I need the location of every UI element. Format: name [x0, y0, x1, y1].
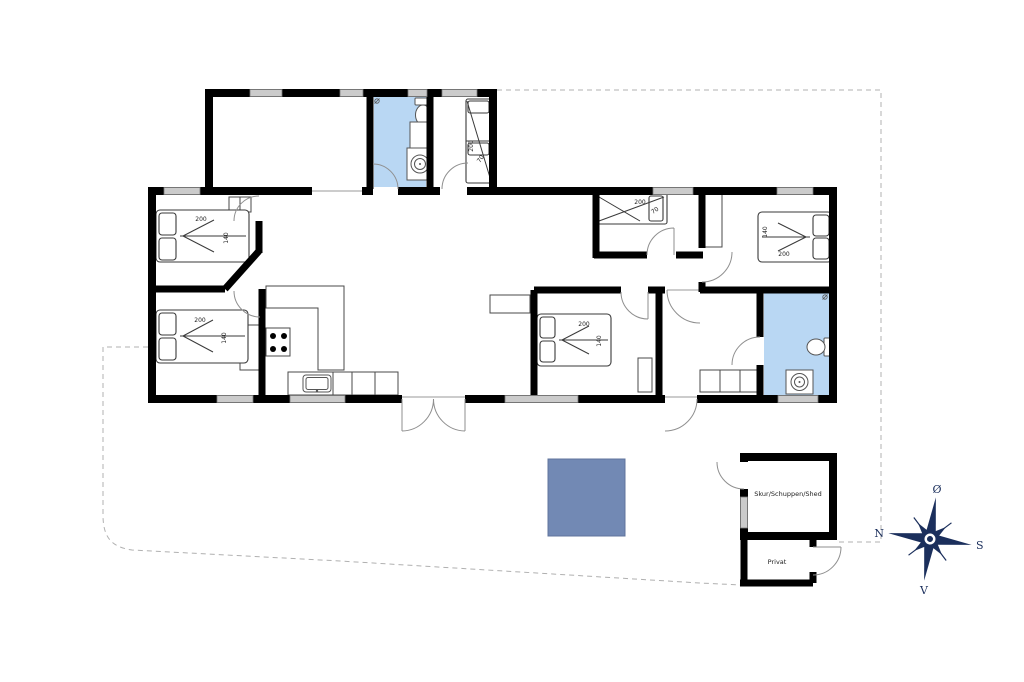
stove — [266, 328, 290, 356]
compass-south-label: S — [976, 539, 984, 552]
shed-label: Skur/Schuppen/Shed — [754, 490, 822, 498]
window — [250, 90, 282, 97]
window — [408, 90, 427, 97]
bedroom-bottom-left: 200 140 — [156, 310, 262, 370]
door-arc — [702, 252, 732, 282]
window — [340, 90, 363, 97]
window — [442, 90, 477, 97]
door-arc — [667, 290, 700, 323]
door-arc — [732, 337, 760, 365]
shed-walls — [740, 453, 837, 583]
french-door-left — [402, 399, 434, 431]
compass-north-label: N — [874, 527, 884, 540]
bunk-bed: 200 70 — [597, 193, 667, 224]
compass-east-label: Ø — [932, 483, 941, 496]
floorplan-canvas: 200 140 200 140 200 140 — [0, 0, 1024, 682]
double-bed: 140 200 — [758, 212, 832, 262]
toilet-icon — [807, 338, 832, 356]
window — [778, 396, 818, 403]
bedroom-top-left: 200 140 — [156, 197, 251, 262]
terrace — [548, 459, 625, 536]
bed-width-label: 140 — [596, 335, 603, 347]
privat-door-arc — [813, 547, 841, 575]
bunkroom-wing: 200 70 — [466, 99, 492, 183]
window — [741, 497, 748, 528]
door-arc — [647, 228, 674, 255]
window — [777, 188, 813, 195]
cabinet — [638, 358, 652, 392]
bed-length-label: 200 — [468, 140, 475, 152]
sideboard — [490, 295, 530, 313]
window — [164, 188, 200, 195]
privat-label: Privat — [768, 558, 787, 566]
kitchen-sink-icon — [303, 375, 331, 392]
compass-rose: Ø N S V — [874, 483, 983, 597]
door-arc — [621, 292, 648, 319]
wardrobe — [705, 194, 722, 247]
bed-length-label: 200 — [195, 216, 207, 223]
shed-door-arc — [717, 462, 744, 489]
double-bed: 200 140 — [156, 310, 248, 363]
window — [653, 188, 693, 195]
bed-width-label: 140 — [223, 232, 230, 244]
bedroom-middle: 200 140 — [537, 314, 652, 392]
entrance-door-arc — [665, 399, 697, 431]
hallway — [700, 370, 760, 392]
compass-west-label: V — [919, 584, 929, 597]
door-arc — [442, 163, 468, 189]
floorplan-drawing: 200 140 200 140 200 140 — [0, 0, 1024, 682]
double-bed: 200 140 — [156, 210, 249, 262]
shower-icon — [786, 370, 813, 394]
bed-width-label: 140 — [762, 226, 769, 238]
double-bed: 200 140 — [537, 314, 611, 366]
bedroom-right: 140 200 — [705, 194, 832, 262]
bed-length-label: 200 — [194, 317, 206, 324]
window — [290, 396, 345, 403]
hall-wardrobe — [700, 370, 760, 392]
bed-width-label: 140 — [221, 332, 228, 344]
kitchen — [266, 286, 398, 395]
bed-length-label: 200 — [578, 321, 590, 328]
french-door-right — [434, 399, 466, 431]
bed-length-label: 200 — [634, 199, 646, 206]
bunk-bed: 200 70 — [466, 99, 492, 183]
bunkroom-north: 200 70 — [597, 193, 667, 224]
window — [217, 396, 253, 403]
window — [505, 396, 578, 403]
bed-length-label: 200 — [778, 251, 790, 258]
